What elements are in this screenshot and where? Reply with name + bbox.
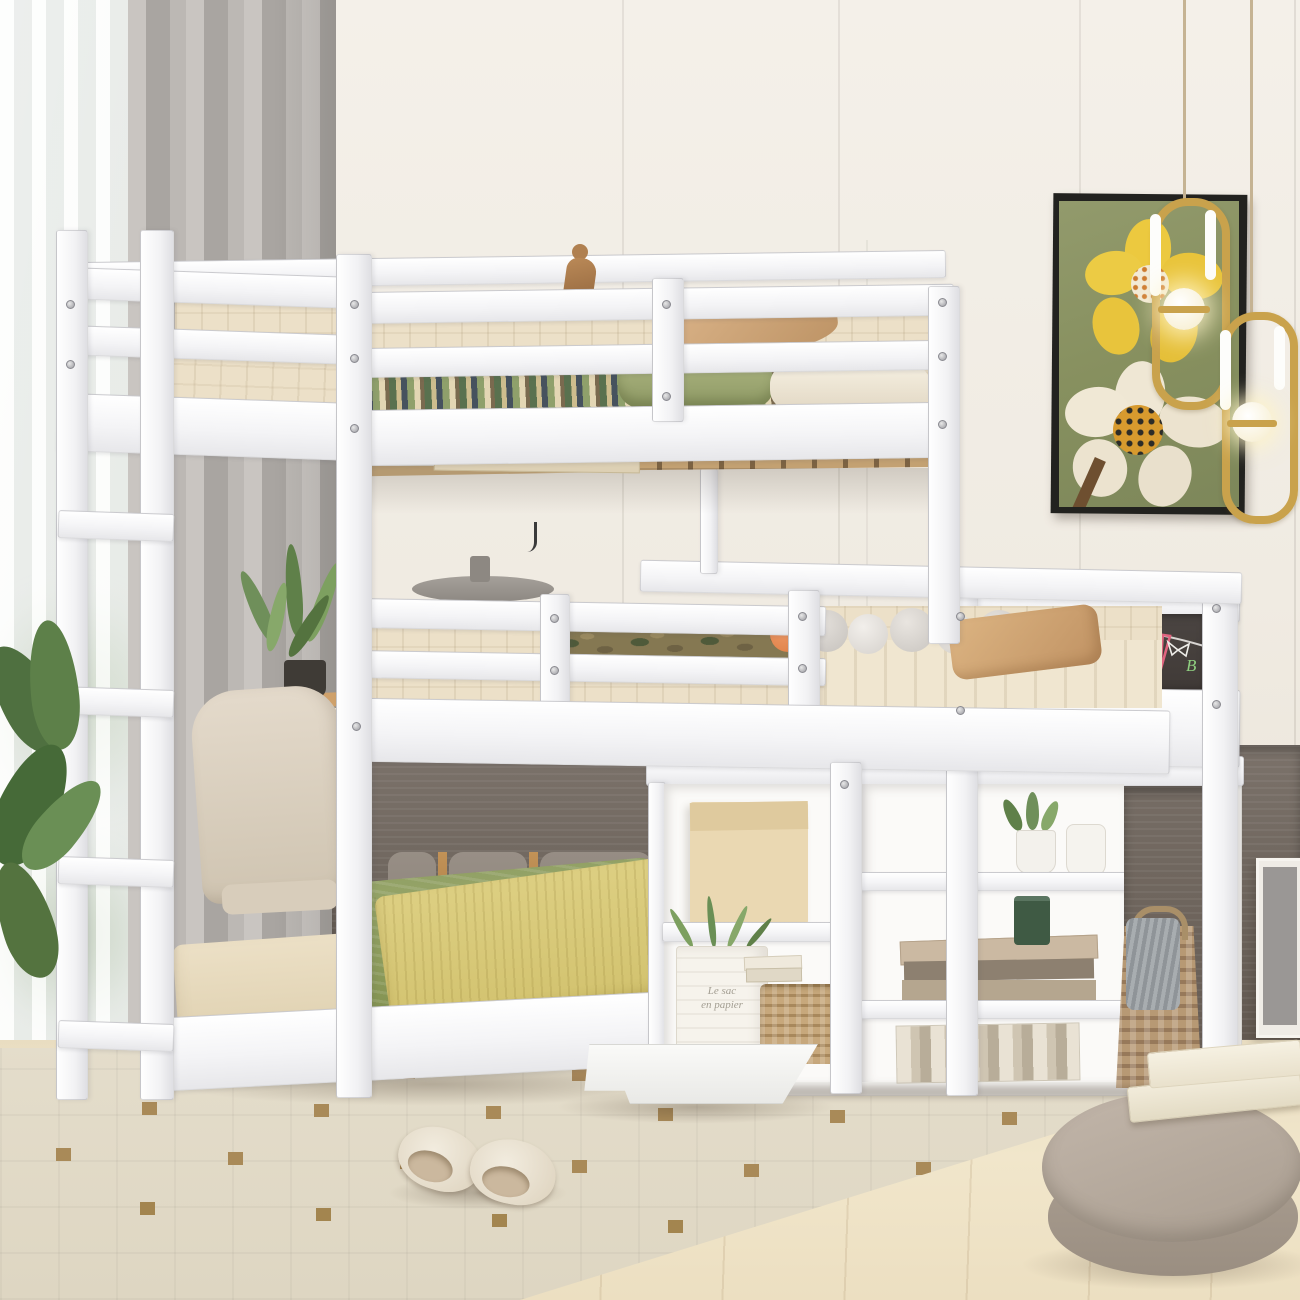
screw [956,706,965,715]
screw [662,392,671,401]
mini-book-stack [746,968,802,983]
ladder-rail-front [140,230,174,1100]
thin-books-row [896,1022,1081,1083]
screw [938,420,947,429]
lamp-cord [1250,0,1253,316]
rug-motif-row [142,1102,157,1115]
pompom [848,614,888,654]
storage-box-flap [690,801,808,831]
screw [66,360,75,369]
white-vase [1066,824,1106,878]
middle-bed-leg [830,762,862,1094]
lamp-gold-hub [1158,306,1210,313]
screw [956,612,965,621]
book-slab [904,958,1094,981]
screw [798,664,807,673]
table-lamp-cap [470,556,490,582]
left-end-fascia [57,393,361,462]
big-leaf [0,855,69,985]
lamp-gold-hub [1227,420,1277,427]
ladder-rung [58,1020,175,1052]
top-bunk-right-post [928,286,960,644]
ladder-rung [58,510,175,542]
gray-blanket-in-basket [1126,918,1180,1010]
cabinet-right-shelf [860,872,1128,891]
nightstand [1256,858,1300,1038]
front-left-post [336,254,372,1098]
screw [662,300,671,309]
screw [350,300,359,309]
sprig [725,905,750,950]
rug-motif-row [140,1202,155,1215]
cabinet-right-shelf [860,1000,1128,1019]
lamp-white-tube [1205,210,1216,280]
nightstand-door [1263,867,1297,1025]
lamp-white-tube [1220,330,1231,410]
screw [550,614,559,623]
chair-seat [221,879,338,915]
sprig [744,917,773,950]
floor-plant [0,620,140,1020]
screw [798,612,807,621]
screw [938,352,947,361]
sprig [705,896,717,948]
white-flower-center [1113,405,1163,455]
screw [66,300,75,309]
book-slab [902,980,1096,1000]
lamp-cord [1183,0,1186,202]
leaf [1038,799,1062,833]
top-bunk-fascia [340,402,955,467]
screw [840,780,849,789]
chair-back [189,683,353,905]
green-candle-jar [1014,896,1050,945]
potted-plant-small [996,792,1072,880]
rug-motif-row [56,1148,71,1161]
sprig [667,907,695,949]
chalkboard-right-post [1202,586,1238,1096]
plant-pot [1016,830,1056,874]
screw [550,666,559,675]
screw [350,424,359,433]
screw [1212,700,1221,709]
screw [352,722,361,731]
screw [938,298,947,307]
leaf [999,797,1026,833]
lamp-white-tube [1150,214,1161,296]
yellow-petal [1086,292,1146,360]
hanging-hook [522,522,537,552]
screw [1212,604,1221,613]
screw [350,354,359,363]
chalk-letter: B [1186,656,1196,676]
bedroom-scene: Le sac en papier [0,0,1300,1300]
middle-bed-fascia [344,698,1171,775]
lamp-white-tube [1274,326,1285,390]
slipper-opening [479,1162,532,1201]
leaf [1026,792,1039,830]
